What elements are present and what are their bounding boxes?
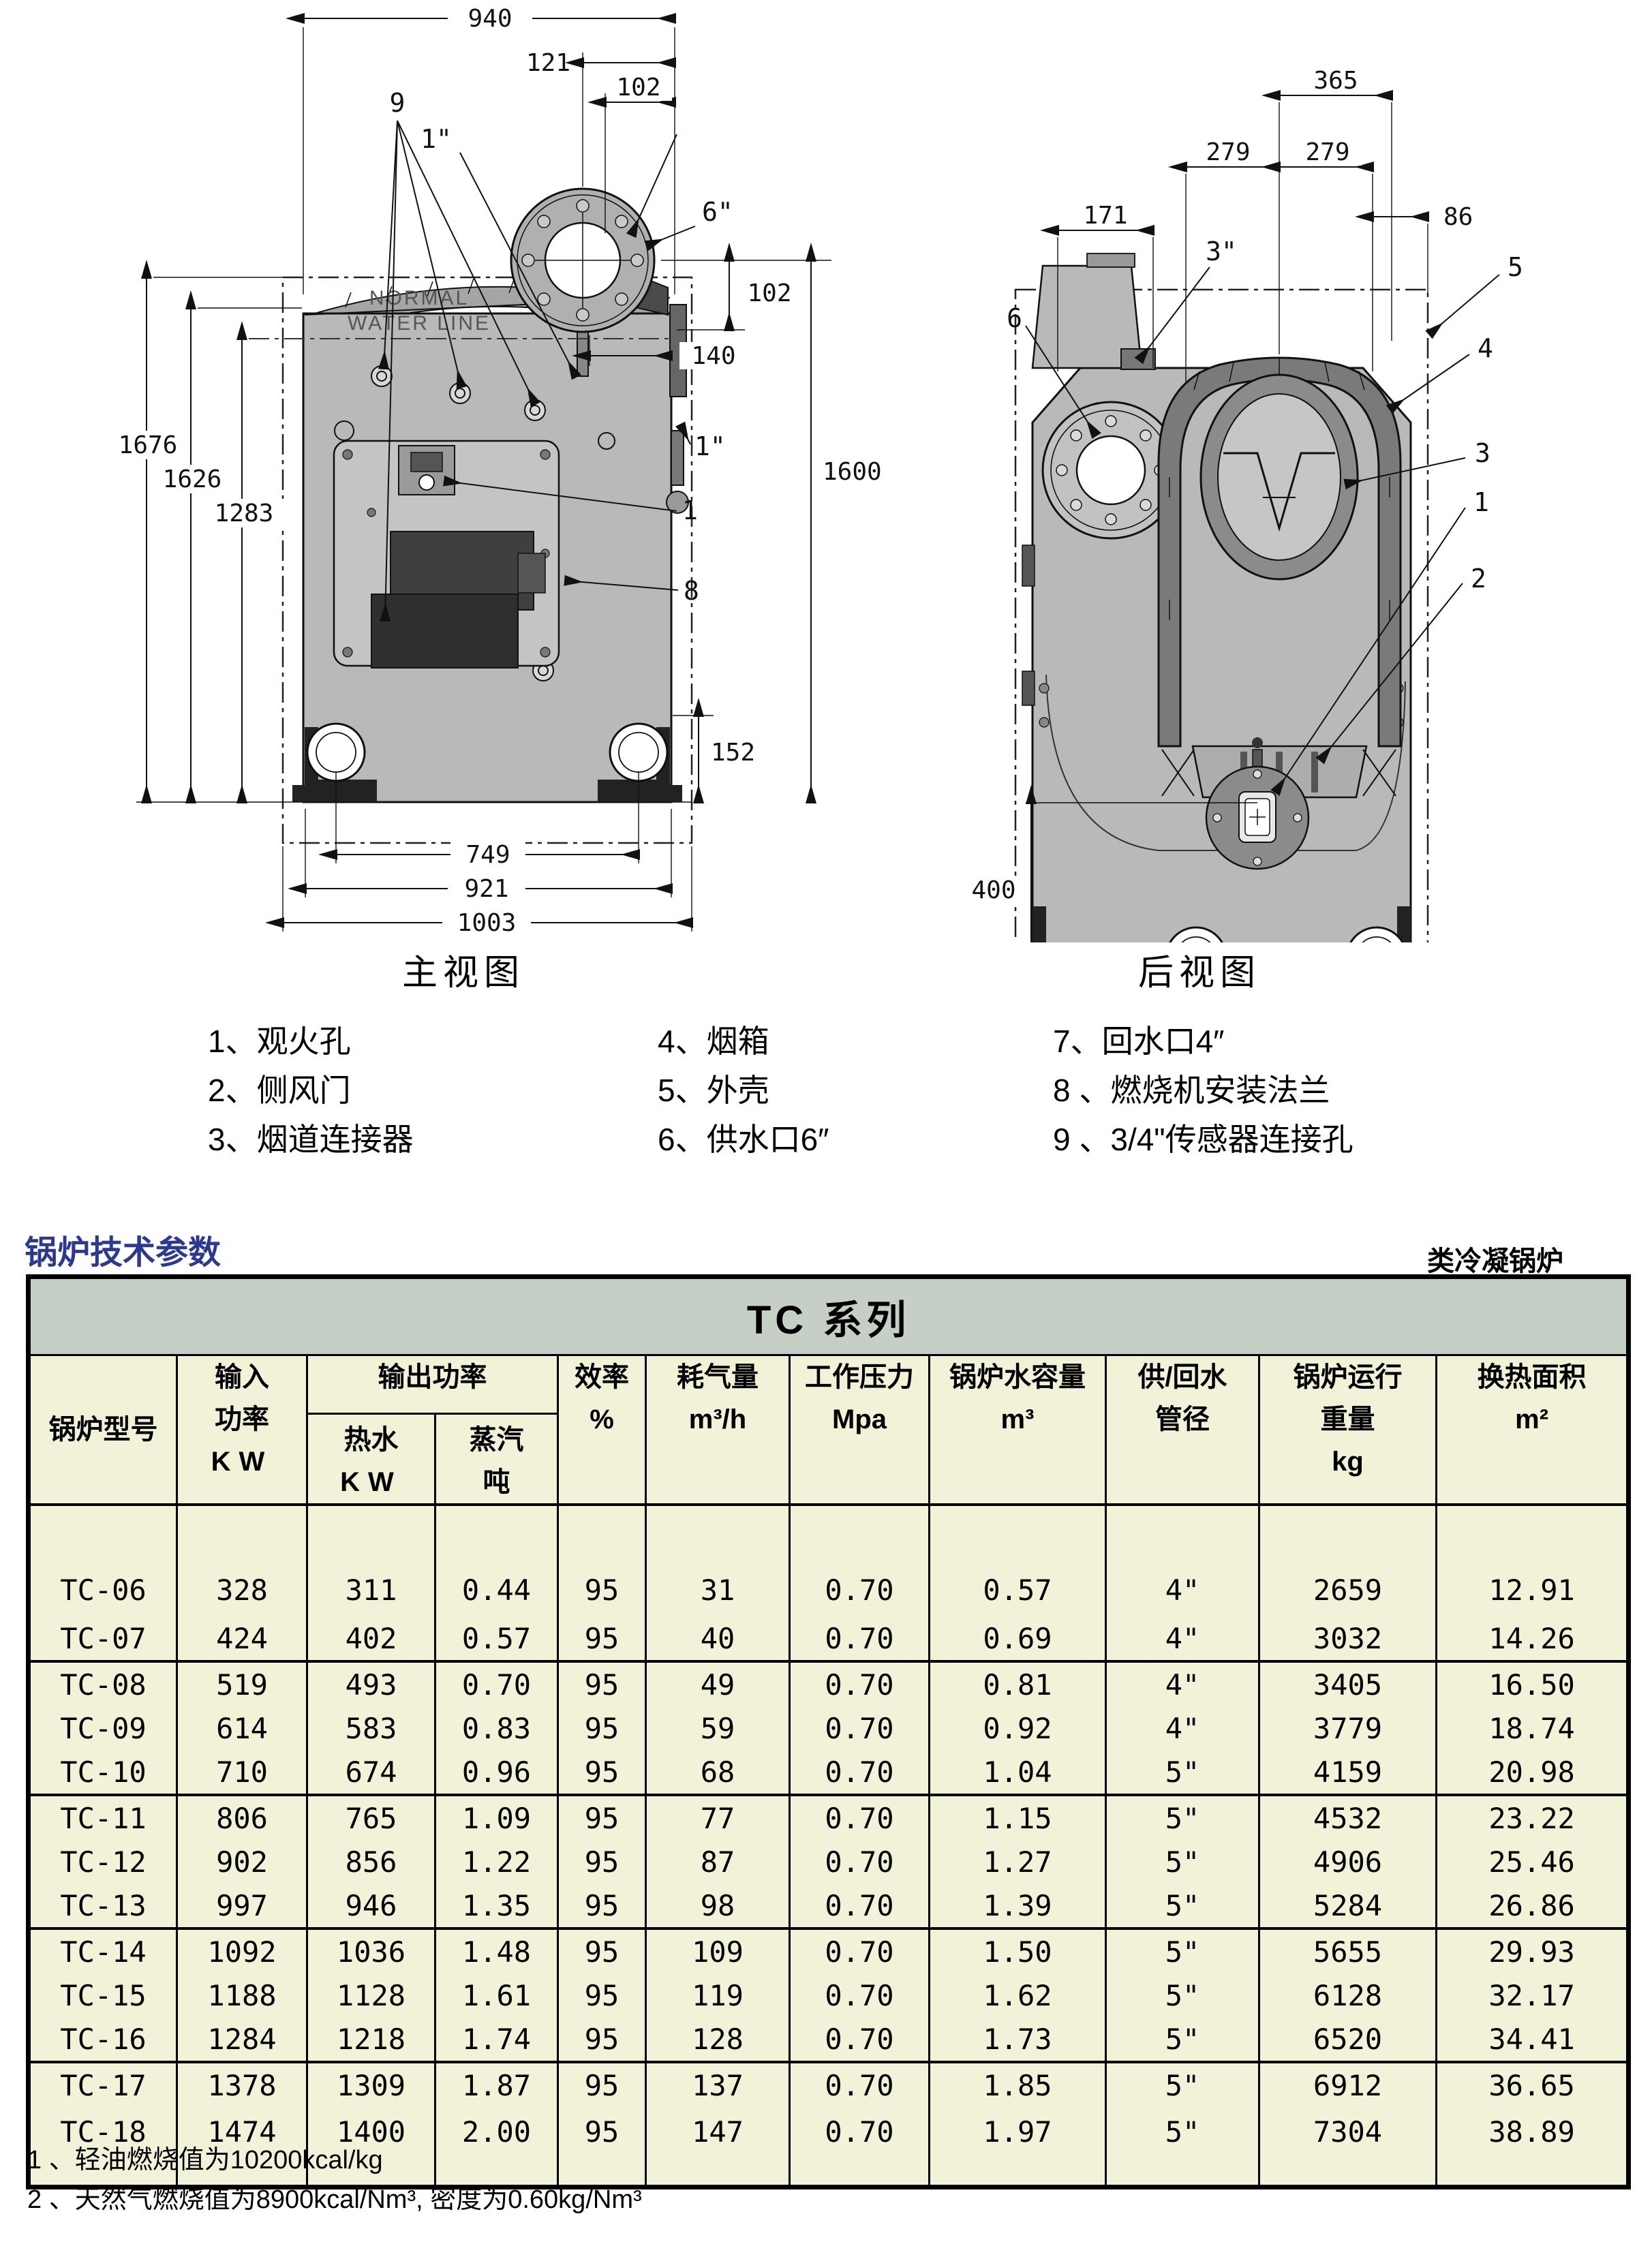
col-header-efficiency: 效率 %: [558, 1355, 646, 1505]
table-row: TC-17137813091.87951370.701.855"691236.6…: [29, 2062, 1629, 2107]
table-cell: 311: [307, 1505, 435, 1616]
legend-column-1: 1、观火孔 2、侧风门 3、烟道连接器: [208, 1017, 414, 1164]
label-6: 6: [1007, 303, 1022, 333]
dim-1003: 1003: [457, 909, 517, 937]
table-row: TC-074244020.5795400.700.694"303214.26: [29, 1616, 1629, 1661]
table-cell: 0.70: [790, 1928, 930, 1973]
table-cell: 5": [1106, 1750, 1259, 1795]
col-header-pipe-diameter: 供/回水 管径: [1106, 1355, 1259, 1505]
legend-item: 7、回水口4″: [1053, 1017, 1353, 1066]
table-cell: 119: [646, 1973, 790, 2017]
table-cell: 614: [177, 1706, 307, 1750]
table-cell: 3032: [1259, 1616, 1437, 1661]
table-cell: 5284: [1259, 1884, 1437, 1928]
table-cell: 1.09: [435, 1795, 558, 1840]
table-cell: 1.74: [435, 2017, 558, 2062]
table-cell: 328: [177, 1505, 307, 1616]
table-cell: 95: [558, 2107, 646, 2187]
table-cell: 1.97: [930, 2107, 1106, 2187]
table-cell: TC-09: [29, 1706, 177, 1750]
table-cell: 1.27: [930, 1840, 1106, 1884]
table-cell: 109: [646, 1928, 790, 1973]
section-title: 锅炉技术参数: [25, 1225, 221, 1273]
label-3in: 3": [1206, 236, 1237, 266]
table-cell: 95: [558, 1973, 646, 2017]
label-4: 4: [1478, 333, 1493, 363]
dim-140: 140: [691, 342, 735, 370]
table-cell: 25.46: [1437, 1840, 1629, 1884]
table-row: TC-14109210361.48951090.701.505"565529.9…: [29, 1928, 1629, 1973]
dim-102-right: 102: [747, 279, 791, 307]
dim-152: 152: [711, 739, 755, 767]
table-cell: TC-12: [29, 1840, 177, 1884]
table-cell: 14.26: [1437, 1616, 1629, 1661]
table-cell: TC-13: [29, 1884, 177, 1928]
table-cell: 0.57: [435, 1616, 558, 1661]
table-cell: 1092: [177, 1928, 307, 1973]
table-cell: 1378: [177, 2062, 307, 2107]
table-cell: 1.35: [435, 1884, 558, 1928]
table-row: TC-139979461.3595980.701.395"528426.86: [29, 1884, 1629, 1928]
burner-assembly: [334, 441, 559, 668]
label-1in-right: 1": [694, 431, 726, 461]
legend-column-2: 4、烟箱 5、外壳 6、供水口6″: [658, 1017, 829, 1164]
table-cell: 1.48: [435, 1928, 558, 1973]
footnote-1: 1 、轻油燃烧值为10200kcal/kg: [27, 2138, 383, 2176]
dim-279-right: 279: [1305, 138, 1349, 166]
table-cell: 1.15: [930, 1795, 1106, 1840]
table-cell: TC-10: [29, 1750, 177, 1795]
table-cell: 1.73: [930, 2017, 1106, 2062]
waterline-text-2: WATER LINE: [348, 312, 491, 335]
table-cell: 0.70: [790, 1795, 930, 1840]
flue-connector: [1201, 375, 1358, 579]
table-cell: 36.65: [1437, 2062, 1629, 2107]
table-cell: TC-16: [29, 2017, 177, 2062]
table-cell: 0.70: [790, 1505, 930, 1616]
table-cell: 1.50: [930, 1928, 1106, 1973]
legend-item: 3、烟道连接器: [208, 1115, 414, 1164]
table-cell: 26.86: [1437, 1884, 1629, 1928]
table-cell: 40: [646, 1616, 790, 1661]
table-cell: 1.22: [435, 1840, 558, 1884]
dim-400: 400: [971, 876, 1015, 904]
table-cell: 137: [646, 2062, 790, 2107]
legend-item: 9 、3/4"传感器连接孔: [1053, 1115, 1353, 1164]
table-cell: 5": [1106, 1884, 1259, 1928]
legend-item: 4、烟箱: [658, 1017, 829, 1066]
label-8: 8: [684, 576, 699, 606]
table-cell: 5": [1106, 1840, 1259, 1884]
table-row: TC-085194930.7095490.700.814"340516.50: [29, 1661, 1629, 1706]
table-cell: 0.81: [930, 1661, 1106, 1706]
dim-102-top: 102: [616, 74, 660, 102]
document-page: NORMAL WATER LINE 940 121 102: [0, 0, 1652, 2244]
table-cell: 128: [646, 2017, 790, 2062]
table-cell: 95: [558, 1706, 646, 1750]
dim-1626: 1626: [163, 465, 222, 493]
legend-item: 8 、燃烧机安装法兰: [1053, 1066, 1353, 1115]
table-cell: 1.62: [930, 1973, 1106, 2017]
col-header-heat-area: 换热面积 m²: [1437, 1355, 1629, 1505]
table-cell: 0.57: [930, 1505, 1106, 1616]
table-cell: 1.39: [930, 1884, 1106, 1928]
table-cell: 5": [1106, 1928, 1259, 1973]
col-header-water-volume: 锅炉水容量 m³: [930, 1355, 1106, 1505]
table-cell: 95: [558, 1795, 646, 1840]
table-cell: TC-14: [29, 1928, 177, 1973]
table-cell: 583: [307, 1706, 435, 1750]
table-cell: 806: [177, 1795, 307, 1840]
legend-item: 2、侧风门: [208, 1066, 414, 1115]
legend-item: 1、观火孔: [208, 1017, 414, 1066]
front-view-diagram: NORMAL WATER LINE 940 121 102: [0, 0, 917, 944]
table-cell: 0.70: [790, 2062, 930, 2107]
table-cell: 16.50: [1437, 1661, 1629, 1706]
series-title-row: TC 系列: [29, 1277, 1629, 1355]
col-header-input-power: 输入 功率 KW: [177, 1355, 307, 1505]
table-cell: 856: [307, 1840, 435, 1884]
sight-hole: [419, 475, 434, 490]
table-cell: 1.87: [435, 2062, 558, 2107]
table-cell: TC-11: [29, 1795, 177, 1840]
table-cell: 3405: [1259, 1661, 1437, 1706]
table-cell: 59: [646, 1706, 790, 1750]
table-cell: 20.98: [1437, 1750, 1629, 1795]
col-header-gas-consumption: 耗气量 m³/h: [646, 1355, 790, 1505]
table-cell: TC-07: [29, 1616, 177, 1661]
table-cell: 424: [177, 1616, 307, 1661]
table-cell: TC-17: [29, 2062, 177, 2107]
table-cell: 95: [558, 1750, 646, 1795]
rear-view-title: 后视图: [1090, 944, 1309, 995]
rear-view-diagram: 365 279 279 86 171 3" 5 4 3 1 2 6: [954, 5, 1642, 942]
label-1in-top: 1": [420, 124, 452, 154]
table-cell: 68: [646, 1750, 790, 1795]
table-cell: 1188: [177, 1973, 307, 2017]
table-cell: 4": [1106, 1661, 1259, 1706]
label-9: 9: [390, 88, 406, 118]
table-cell: 95: [558, 1616, 646, 1661]
table-cell: 77: [646, 1795, 790, 1840]
col-header-running-weight: 锅炉运行 重量 kg: [1259, 1355, 1437, 1505]
series-title: TC 系列: [29, 1277, 1629, 1355]
table-cell: 23.22: [1437, 1795, 1629, 1840]
table-cell: 4906: [1259, 1840, 1437, 1884]
table-cell: 0.70: [790, 2107, 930, 2187]
dim-1283: 1283: [215, 499, 274, 527]
table-row: TC-129028561.2295870.701.275"490625.46: [29, 1840, 1629, 1884]
table-cell: 1284: [177, 2017, 307, 2062]
table-cell: 0.70: [790, 1884, 930, 1928]
table-cell: 147: [646, 2107, 790, 2187]
label-6in: 6": [702, 197, 733, 227]
label-5: 5: [1508, 252, 1523, 282]
table-cell: 1309: [307, 2062, 435, 2107]
table-cell: 0.70: [790, 1750, 930, 1795]
section-tag: 类冷凝锅炉: [1427, 1239, 1563, 1278]
dim-940: 940: [468, 5, 512, 33]
table-cell: 5": [1106, 2107, 1259, 2187]
dim-1676: 1676: [119, 431, 178, 459]
label-1: 1: [682, 495, 698, 525]
col-header-working-pressure: 工作压力 Mpa: [790, 1355, 930, 1505]
table-cell: 4": [1106, 1505, 1259, 1616]
table-cell: 29.93: [1437, 1928, 1629, 1973]
table-body: TC-063283110.4495310.700.574"265912.91TC…: [29, 1505, 1629, 2187]
table-cell: 5655: [1259, 1928, 1437, 1973]
front-view-title: 主视图: [354, 944, 572, 995]
table-cell: 4": [1106, 1616, 1259, 1661]
legend-item: 6、供水口6″: [658, 1115, 829, 1164]
table-cell: 0.44: [435, 1505, 558, 1616]
table-cell: 0.70: [790, 2017, 930, 2062]
label-1-rear: 1: [1473, 487, 1489, 517]
table-cell: 12.91: [1437, 1505, 1629, 1616]
label-2: 2: [1471, 564, 1486, 594]
table-row: TC-096145830.8395590.700.924"377918.74: [29, 1706, 1629, 1750]
table-cell: 2.00: [435, 2107, 558, 2187]
dim-279-left: 279: [1206, 138, 1250, 166]
col-header-steam: 蒸汽 吨: [435, 1414, 558, 1505]
table-cell: 519: [177, 1661, 307, 1706]
table-row: TC-16128412181.74951280.701.735"652034.4…: [29, 2017, 1629, 2062]
table-cell: 18.74: [1437, 1706, 1629, 1750]
legend-column-3: 7、回水口4″ 8 、燃烧机安装法兰 9 、3/4"传感器连接孔: [1053, 1017, 1353, 1164]
table-cell: 0.92: [930, 1706, 1106, 1750]
table-cell: TC-06: [29, 1505, 177, 1616]
table-cell: 0.70: [790, 1616, 930, 1661]
table-cell: 902: [177, 1840, 307, 1884]
table-cell: 6128: [1259, 1973, 1437, 2017]
table-cell: 5": [1106, 1795, 1259, 1840]
table-cell: 95: [558, 2062, 646, 2107]
table-cell: 1.61: [435, 1973, 558, 2017]
table-cell: 1218: [307, 2017, 435, 2062]
table-cell: 1036: [307, 1928, 435, 1973]
table-cell: 6912: [1259, 2062, 1437, 2107]
table-cell: 674: [307, 1750, 435, 1795]
dim-921: 921: [464, 875, 508, 903]
table-cell: 0.96: [435, 1750, 558, 1795]
col-header-model: 锅炉型号: [29, 1355, 177, 1505]
table-cell: 5": [1106, 2062, 1259, 2107]
dim-121: 121: [526, 49, 570, 77]
table-cell: 2659: [1259, 1505, 1437, 1616]
table-cell: 0.69: [930, 1616, 1106, 1661]
table-cell: 95: [558, 1505, 646, 1616]
table-cell: 765: [307, 1795, 435, 1840]
table-cell: 4159: [1259, 1750, 1437, 1795]
table-cell: 5": [1106, 2017, 1259, 2062]
table-row: TC-107106740.9695680.701.045"415920.98: [29, 1750, 1629, 1795]
dim-86: 86: [1443, 203, 1473, 231]
table-cell: 34.41: [1437, 2017, 1629, 2062]
table-cell: 95: [558, 1840, 646, 1884]
table-cell: 4": [1106, 1706, 1259, 1750]
table-cell: 95: [558, 1884, 646, 1928]
table-cell: 3779: [1259, 1706, 1437, 1750]
col-header-hot-water: 热水 KW: [307, 1414, 435, 1505]
dim-1600: 1600: [823, 458, 882, 486]
table-cell: 0.70: [435, 1661, 558, 1706]
table-cell: 0.70: [790, 1706, 930, 1750]
table-cell: 95: [558, 1928, 646, 1973]
table-row: TC-063283110.4495310.700.574"265912.91: [29, 1505, 1629, 1616]
table-cell: 1.04: [930, 1750, 1106, 1795]
table-cell: 402: [307, 1616, 435, 1661]
dim-171: 171: [1083, 202, 1127, 230]
table-cell: TC-15: [29, 1973, 177, 2017]
waterline-text-1: NORMAL: [369, 287, 469, 309]
table-cell: 4532: [1259, 1795, 1437, 1840]
table-cell: 493: [307, 1661, 435, 1706]
table-cell: 1128: [307, 1973, 435, 2017]
table-cell: 95: [558, 2017, 646, 2062]
table-cell: 32.17: [1437, 1973, 1629, 2017]
table-cell: 0.83: [435, 1706, 558, 1750]
footnote-2: 2 、天然气燃烧值为8900kcal/Nm³, 密度为0.60kg/Nm³: [27, 2178, 642, 2215]
table-cell: 31: [646, 1505, 790, 1616]
table-cell: 98: [646, 1884, 790, 1928]
table-cell: TC-08: [29, 1661, 177, 1706]
col-header-output-power: 输出功率: [307, 1355, 558, 1414]
dim-749: 749: [465, 841, 510, 869]
spec-table: TC 系列 锅炉型号 输入 功率 KW 输出功率 效率 %: [26, 1274, 1631, 2189]
table-cell: 87: [646, 1840, 790, 1884]
table-row: TC-15118811281.61951190.701.625"612832.1…: [29, 1973, 1629, 2017]
table-row: TC-118067651.0995770.701.155"453223.22: [29, 1795, 1629, 1840]
table-cell: 38.89: [1437, 2107, 1629, 2187]
dim-365: 365: [1313, 67, 1358, 95]
table-cell: 5": [1106, 1973, 1259, 2017]
table-cell: 0.70: [790, 1973, 930, 2017]
table-cell: 0.70: [790, 1661, 930, 1706]
table-cell: 710: [177, 1750, 307, 1795]
legend-item: 5、外壳: [658, 1066, 829, 1115]
table-cell: 6520: [1259, 2017, 1437, 2062]
table-cell: 49: [646, 1661, 790, 1706]
table-cell: 1.85: [930, 2062, 1106, 2107]
table-cell: 0.70: [790, 1840, 930, 1884]
table-cell: 95: [558, 1661, 646, 1706]
table-cell: 7304: [1259, 2107, 1437, 2187]
table-cell: 946: [307, 1884, 435, 1928]
table-cell: 997: [177, 1884, 307, 1928]
label-3: 3: [1475, 438, 1490, 468]
